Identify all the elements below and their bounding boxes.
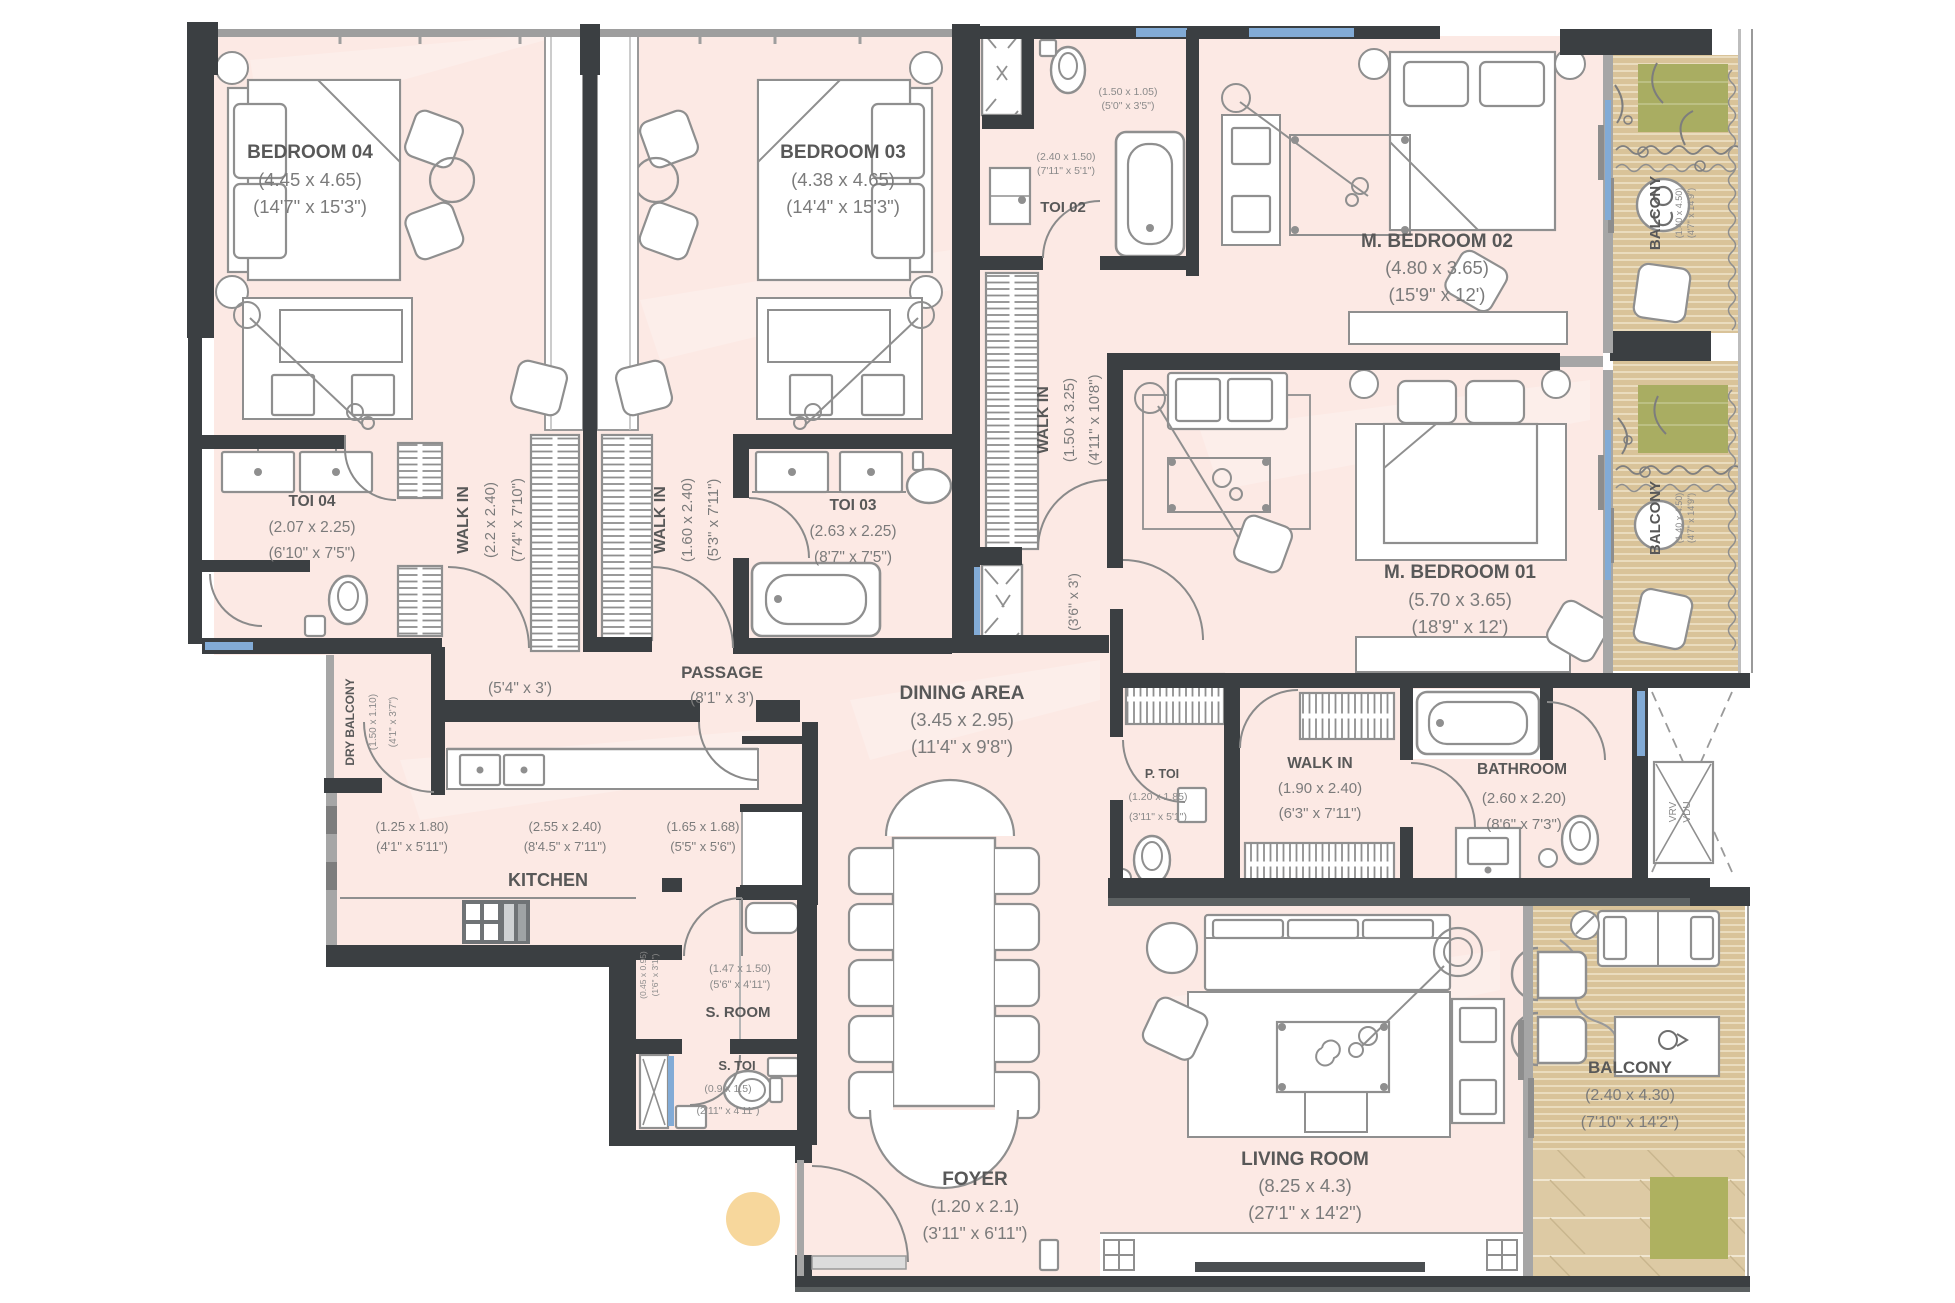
- svg-text:(8'4.5" x 7'11"): (8'4.5" x 7'11"): [524, 839, 607, 854]
- svg-text:(1.50 x 1.10): (1.50 x 1.10): [368, 694, 379, 750]
- svg-text:(1.65 x 1.68): (1.65 x 1.68): [667, 819, 740, 834]
- svg-text:(8.25 x 4.3): (8.25 x 4.3): [1258, 1175, 1352, 1196]
- svg-text:VDU: VDU: [1682, 801, 1693, 822]
- svg-text:(2.07 x 2.25): (2.07 x 2.25): [268, 519, 355, 536]
- svg-text:(1.20 x 1.85): (1.20 x 1.85): [1129, 791, 1188, 803]
- svg-text:(5'0" x 3'5"): (5'0" x 3'5"): [1102, 100, 1155, 112]
- svg-text:(2.2 x 2.40): (2.2 x 2.40): [482, 482, 499, 558]
- svg-text:(1.40 x 4.50): (1.40 x 4.50): [1674, 493, 1684, 544]
- svg-text:(1.47 x 1.50): (1.47 x 1.50): [709, 963, 771, 975]
- svg-text:VRV: VRV: [1668, 801, 1679, 822]
- svg-text:(11'4" x 9'8"): (11'4" x 9'8"): [911, 736, 1013, 757]
- svg-text:TOI 04: TOI 04: [288, 493, 335, 510]
- svg-text:(4.38 x 4.65): (4.38 x 4.65): [791, 169, 895, 190]
- svg-text:(7'10" x 14'2"): (7'10" x 14'2"): [1581, 1114, 1679, 1131]
- svg-text:(14'7" x 15'3"): (14'7" x 15'3"): [253, 196, 367, 217]
- svg-text:(6'3" x 7'11"): (6'3" x 7'11"): [1279, 805, 1362, 822]
- svg-text:(14'4" x 15'3"): (14'4" x 15'3"): [786, 196, 900, 217]
- svg-text:(1.90 x 2.40): (1.90 x 2.40): [1278, 780, 1362, 797]
- svg-text:LIVING ROOM: LIVING ROOM: [1241, 1149, 1369, 1170]
- svg-text:(5'6" x 4'11"): (5'6" x 4'11"): [710, 979, 771, 991]
- svg-text:BALCONY: BALCONY: [1647, 176, 1664, 250]
- svg-text:(1.25 x 1.80): (1.25 x 1.80): [376, 819, 449, 834]
- svg-text:(5.70 x 3.65): (5.70 x 3.65): [1408, 589, 1512, 610]
- svg-text:TOI 03: TOI 03: [829, 497, 876, 514]
- svg-text:TOI 02: TOI 02: [1040, 199, 1086, 216]
- svg-text:(8'6" x 7'3"): (8'6" x 7'3"): [1486, 816, 1562, 833]
- svg-text:(5'5" x 5'6"): (5'5" x 5'6"): [670, 839, 736, 854]
- svg-text:(5'4" x 3'): (5'4" x 3'): [488, 680, 552, 697]
- svg-text:(4'1" x 5'11"): (4'1" x 5'11"): [376, 839, 448, 854]
- svg-text:(2.63 x 2.25): (2.63 x 2.25): [809, 523, 896, 540]
- svg-text:(2'11" x 4'11"): (2'11" x 4'11"): [696, 1105, 759, 1117]
- svg-text:WALK IN: WALK IN: [455, 486, 472, 554]
- svg-text:(3'11" x 5'1"): (3'11" x 5'1"): [1129, 811, 1187, 823]
- svg-text:BEDROOM 04: BEDROOM 04: [247, 142, 373, 163]
- svg-text:M. BEDROOM 02: M. BEDROOM 02: [1361, 231, 1513, 252]
- svg-text:BATHROOM: BATHROOM: [1477, 761, 1567, 778]
- svg-text:(5'3" x 7'11"): (5'3" x 7'11"): [705, 479, 722, 562]
- svg-text:(6'10" x 7'5"): (6'10" x 7'5"): [269, 545, 356, 562]
- svg-text:(7'11" x 5'1"): (7'11" x 5'1"): [1037, 165, 1095, 177]
- svg-text:(8'1" x 3'): (8'1" x 3'): [690, 690, 754, 707]
- svg-text:(18'9" x 12'): (18'9" x 12'): [1412, 616, 1509, 637]
- svg-text:(2.60 x 2.20): (2.60 x 2.20): [1482, 790, 1566, 807]
- svg-text:(27'1" x 14'2"): (27'1" x 14'2"): [1248, 1202, 1362, 1223]
- svg-text:(2.40 x 1.50): (2.40 x 1.50): [1037, 151, 1096, 163]
- svg-text:BEDROOM 03: BEDROOM 03: [780, 142, 906, 163]
- svg-text:S. ROOM: S. ROOM: [705, 1004, 770, 1021]
- svg-text:(1.50 x 1.05): (1.50 x 1.05): [1099, 86, 1158, 98]
- svg-text:(4.80 x 3.65): (4.80 x 3.65): [1385, 257, 1489, 278]
- svg-text:(4'7" x 14'9"): (4'7" x 14'9"): [1686, 188, 1696, 238]
- svg-text:(2.40 x 4.30): (2.40 x 4.30): [1585, 1087, 1675, 1104]
- svg-text:(4'11" x 10'8"): (4'11" x 10'8"): [1086, 374, 1103, 465]
- svg-text:S. TOI: S. TOI: [718, 1058, 755, 1073]
- svg-text:(0.9 x 1.5): (0.9 x 1.5): [704, 1083, 751, 1095]
- svg-text:DINING AREA: DINING AREA: [900, 683, 1025, 704]
- svg-text:FOYER: FOYER: [942, 1169, 1008, 1190]
- svg-text:(1.20 x 2.1): (1.20 x 2.1): [931, 1196, 1020, 1216]
- svg-text:(4'1" x 3'7"): (4'1" x 3'7"): [388, 697, 399, 747]
- svg-text:(0.45 x 0.95): (0.45 x 0.95): [638, 951, 648, 999]
- svg-text:PASSAGE: PASSAGE: [681, 663, 763, 682]
- svg-text:P. TOI: P. TOI: [1145, 767, 1179, 781]
- svg-text:WALK IN: WALK IN: [1287, 755, 1352, 772]
- svg-text:(3.45 x 2.95): (3.45 x 2.95): [910, 709, 1014, 730]
- svg-text:(1.40 x 4.50): (1.40 x 4.50): [1674, 188, 1684, 239]
- svg-text:BALCONY: BALCONY: [1588, 1058, 1673, 1077]
- svg-text:KITCHEN: KITCHEN: [508, 870, 588, 890]
- svg-text:M. BEDROOM 01: M. BEDROOM 01: [1384, 562, 1536, 583]
- svg-text:(1'6" x 3'1"): (1'6" x 3'1"): [650, 953, 660, 996]
- svg-text:BALCONY: BALCONY: [1647, 481, 1664, 555]
- svg-text:(8'7" x 7'5"): (8'7" x 7'5"): [814, 549, 892, 566]
- svg-text:(4.45 x 4.65): (4.45 x 4.65): [258, 169, 362, 190]
- svg-text:WALK IN: WALK IN: [652, 486, 669, 554]
- svg-text:DRY BALCONY: DRY BALCONY: [343, 678, 357, 765]
- svg-text:(3'6" x 3'): (3'6" x 3'): [1065, 573, 1081, 631]
- svg-text:(1.50 x 3.25): (1.50 x 3.25): [1061, 378, 1078, 462]
- svg-text:WALK IN: WALK IN: [1035, 386, 1052, 454]
- svg-text:(15'9" x 12'): (15'9" x 12'): [1389, 284, 1486, 305]
- svg-text:(4'7" x 14'9"): (4'7" x 14'9"): [1686, 493, 1696, 543]
- svg-text:(7'4" x 7'10"): (7'4" x 7'10"): [509, 478, 526, 562]
- svg-text:(3'11" x 6'11"): (3'11" x 6'11"): [922, 1223, 1027, 1243]
- svg-text:(2.55 x 2.40): (2.55 x 2.40): [529, 819, 602, 834]
- svg-text:(1.60 x 2.40): (1.60 x 2.40): [679, 478, 696, 562]
